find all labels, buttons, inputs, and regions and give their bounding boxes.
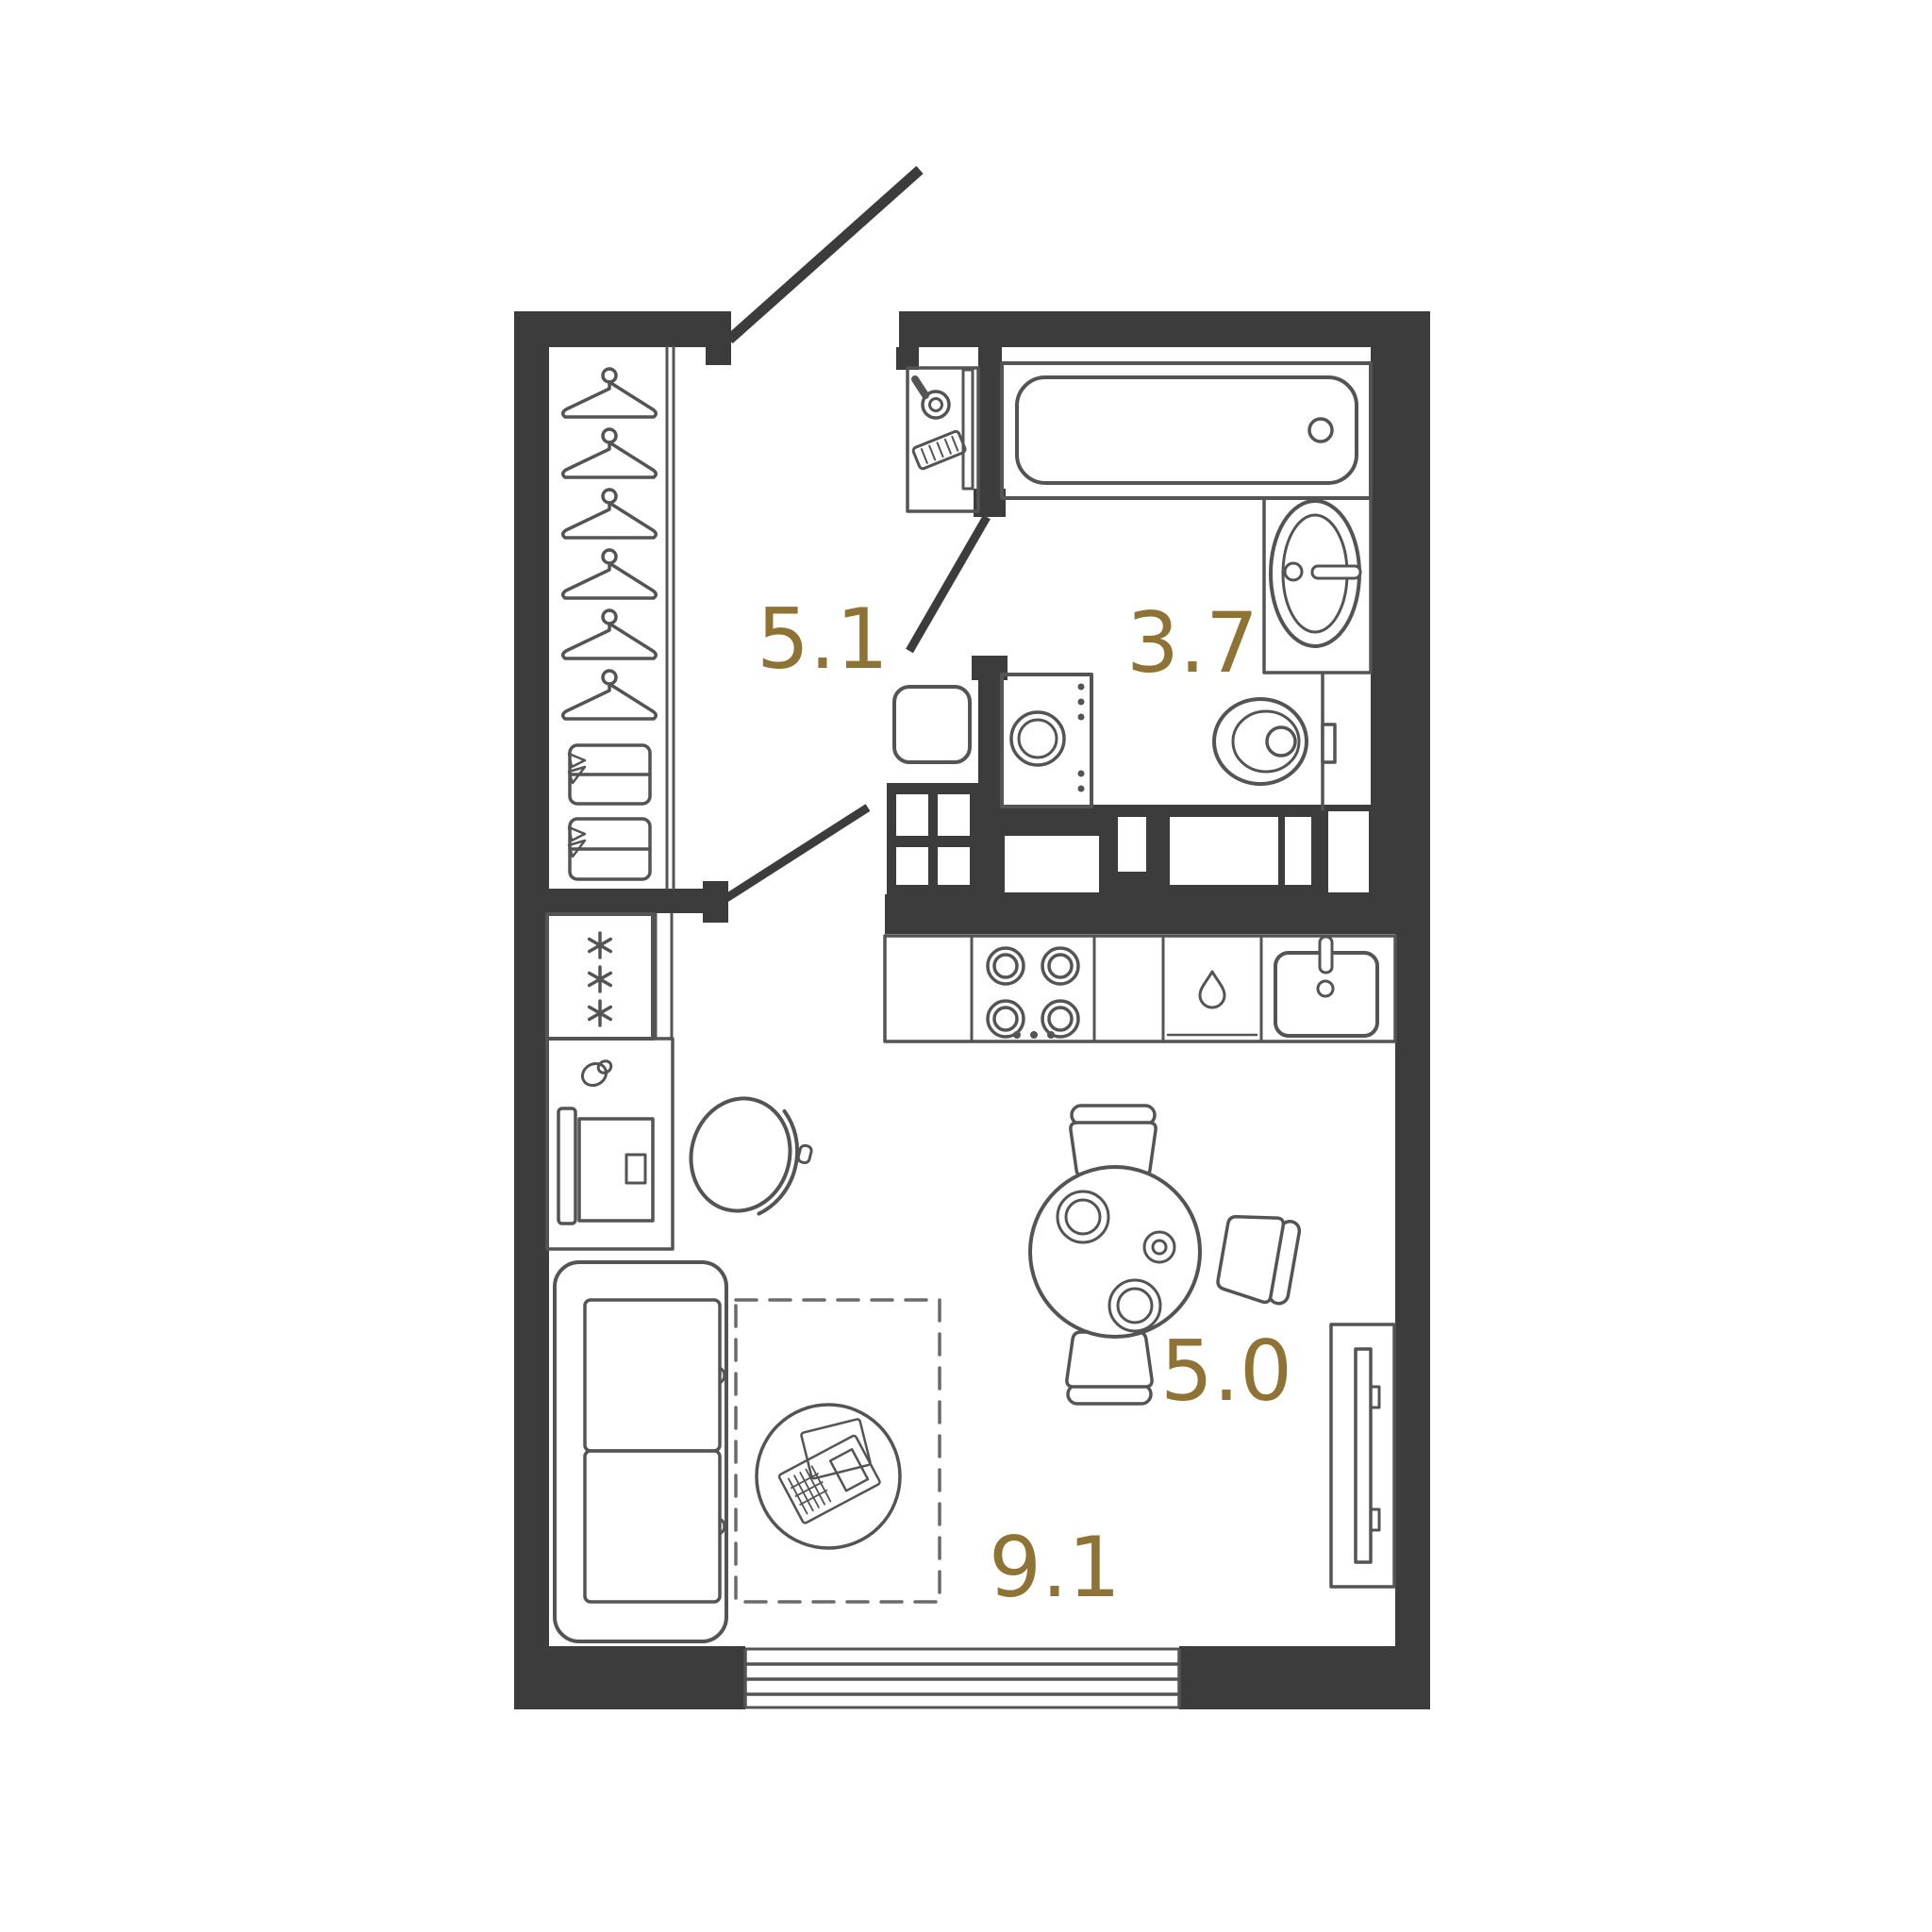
faucet-icon	[1312, 566, 1360, 578]
wall-niche	[1285, 817, 1311, 885]
wall-niche	[1170, 817, 1278, 885]
wall-top-left-segment	[514, 311, 724, 347]
hob-knobs	[1013, 1031, 1055, 1039]
plate-icon	[1058, 1191, 1108, 1242]
plate-icon	[1109, 1280, 1160, 1331]
wall-right	[1395, 311, 1430, 1709]
wall-bathroom-partition-upper	[978, 347, 1002, 491]
room-label-kitchen-dining: 5.0	[1160, 1323, 1292, 1420]
flush-plate	[1323, 724, 1335, 762]
room-label-hallway: 5.1	[757, 591, 889, 688]
dining-chair	[1216, 1209, 1302, 1306]
room-label-living: 9.1	[989, 1519, 1121, 1616]
dining-chair	[1067, 1332, 1152, 1404]
faucet-icon	[1320, 937, 1332, 973]
floor-plan: 5.1 3.7 5.0 9.1	[0, 0, 1932, 1932]
wall-kitchen-band-left	[885, 894, 979, 934]
shoe-shelf-cell	[896, 847, 928, 885]
wall-niche	[1328, 811, 1369, 892]
shoe-shelf-cell	[938, 794, 970, 836]
wall-bottom-right	[1179, 1646, 1430, 1709]
wall-niche	[1118, 817, 1146, 872]
floor-plan-page: 5.1 3.7 5.0 9.1	[0, 0, 1932, 1932]
page-background	[0, 0, 1932, 1932]
wall-bottom-left	[514, 1646, 745, 1709]
shoe-shelf-cell	[896, 794, 928, 836]
interior-door-jamb	[703, 881, 728, 923]
wall-top-right-segment	[899, 311, 1430, 347]
wall-hallway-living	[542, 889, 703, 913]
wall-right-bathroom-pilaster	[1371, 311, 1395, 825]
room-label-bathroom: 3.7	[1126, 594, 1258, 691]
wall-left	[514, 311, 549, 1709]
shoe-shelf	[887, 783, 979, 894]
shoe-shelf-cell	[938, 847, 970, 885]
faucet-base	[1285, 563, 1302, 580]
wall-niche	[1005, 836, 1099, 892]
entry-door-jamb	[706, 311, 731, 365]
